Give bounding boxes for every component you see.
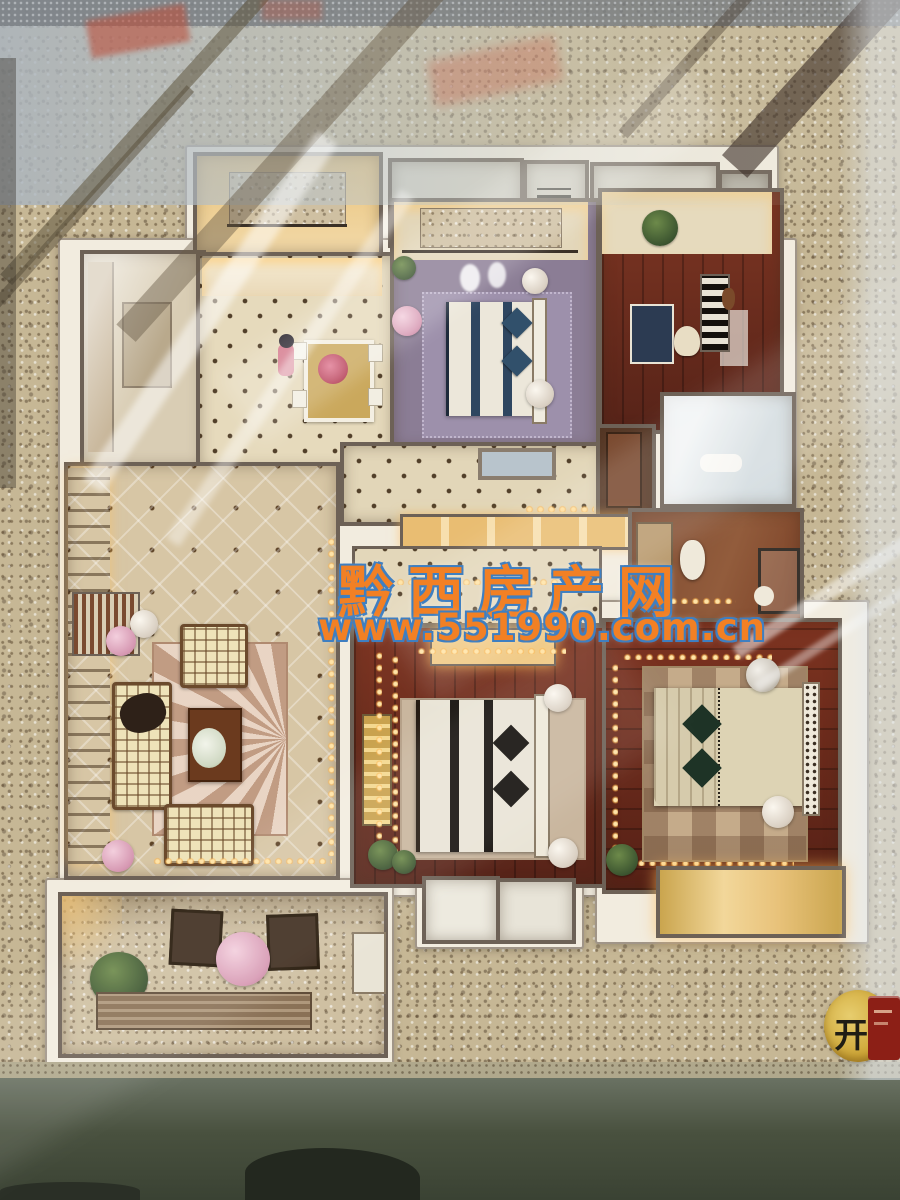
glow-closet-row: [400, 514, 641, 550]
pompom-decor: [522, 268, 548, 294]
potted-plant: [606, 844, 638, 876]
corridor-door-room: [596, 424, 656, 520]
bed-stripe-black: [484, 700, 493, 852]
bookshelf: [700, 274, 730, 352]
led-string: [152, 856, 332, 864]
tag-mark: [874, 1010, 892, 1013]
shower-stool: [754, 586, 774, 606]
red-tag: [868, 996, 900, 1060]
balcony-panel: [420, 208, 562, 248]
bathroom-glare: [664, 396, 792, 504]
armchair-top: [180, 624, 248, 688]
bed-2: [416, 700, 538, 852]
pink-flower-bush: [216, 932, 270, 986]
kitchen-glare: [84, 254, 202, 466]
bottom-balcony: [58, 892, 388, 1058]
balcony-rug: [96, 992, 312, 1030]
study-plant: [642, 210, 678, 246]
living-room: [64, 462, 340, 880]
square-stool: [266, 913, 320, 971]
dining-chair: [368, 388, 383, 406]
bedroom-2: [350, 624, 606, 888]
top-balcony-box: [193, 152, 383, 256]
blanket-fold: [654, 688, 718, 806]
dining-chair: [368, 344, 383, 362]
study-desk: [630, 304, 674, 364]
bed-stripe-black: [450, 700, 459, 852]
pink-flower-ball: [102, 840, 134, 872]
bed-3: [654, 688, 804, 806]
led-string-vertical: [374, 650, 382, 862]
figurine-head: [279, 334, 294, 348]
white-flowers: [192, 728, 226, 768]
bathroom-small: [660, 392, 796, 508]
figurine-body: [278, 344, 294, 376]
study-chair: [674, 326, 700, 356]
floor-below: [0, 1078, 900, 1200]
pink-flower-ball: [392, 306, 422, 336]
glare-spot: [460, 264, 480, 292]
led-string: [622, 652, 772, 660]
potted-plant: [392, 256, 416, 280]
headboard-3: [802, 682, 820, 816]
headboard-2: [534, 694, 550, 858]
dark-shape: [0, 1182, 140, 1200]
model-photo: 开 黔西房产网 www.551990.com.cn: [0, 0, 900, 1200]
dining-window-strip: [202, 258, 382, 296]
watermark-site-url: www.551990.com.cn: [318, 606, 708, 649]
led-string-vertical: [390, 654, 398, 854]
balcony-rail: [402, 250, 578, 253]
glow-box-right: [656, 866, 846, 938]
pink-flower-ball: [106, 626, 136, 656]
pompom-silver: [746, 658, 780, 692]
bedroom-3: [602, 618, 842, 894]
master-bedroom: [390, 198, 600, 451]
tag-mark: [874, 1022, 888, 1025]
wall-picture: [478, 448, 556, 480]
study-balcony: [602, 192, 772, 254]
bed-stripe: [471, 302, 480, 416]
bottom-box-2: [496, 878, 576, 944]
pompom-decor: [544, 684, 572, 712]
wood-door: [606, 432, 642, 508]
dining-chair: [292, 390, 307, 408]
led-string: [524, 504, 594, 512]
drying-rack: [227, 224, 347, 227]
open-sign-label: 开: [834, 1008, 868, 1057]
dark-silhouette: [245, 1148, 420, 1200]
pompom-decor: [548, 838, 578, 868]
led-string-vertical: [610, 662, 618, 852]
tv-wall-cabinet: [68, 468, 110, 864]
dining-room: [196, 252, 396, 472]
master-balcony: [394, 202, 588, 260]
white-ledge: [352, 932, 386, 994]
blanket-trim: [718, 688, 722, 806]
dining-chair: [292, 342, 307, 360]
table-flowers: [318, 354, 348, 384]
kitchen: [80, 250, 206, 470]
granite-panel: [229, 172, 346, 226]
pompom-decor: [762, 796, 794, 828]
vase: [722, 288, 735, 310]
potted-plant: [392, 850, 416, 874]
pompom-decor: [526, 380, 554, 408]
bottom-box-1: [422, 876, 500, 944]
glare-spot: [488, 262, 506, 288]
